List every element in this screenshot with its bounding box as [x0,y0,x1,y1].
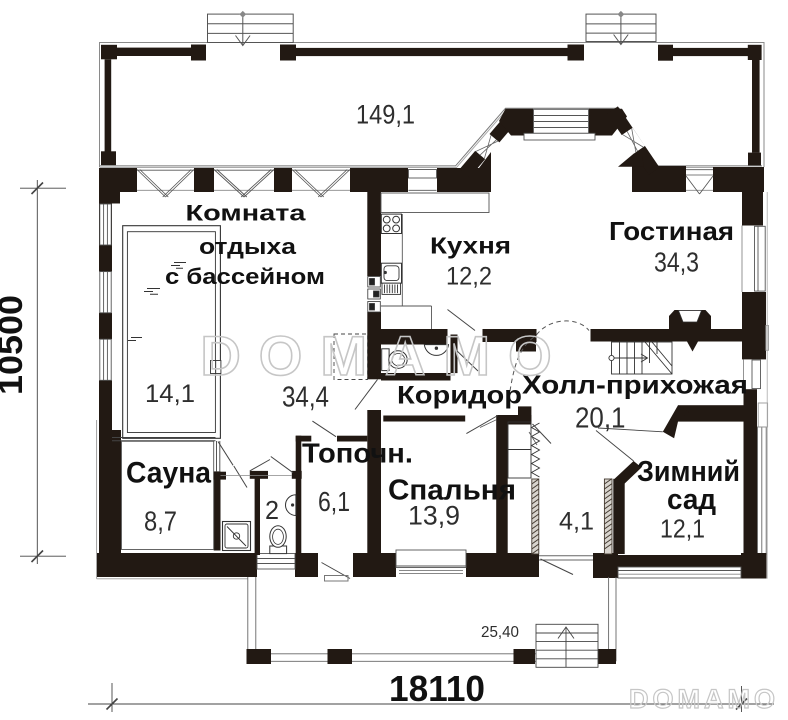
svg-text:12,1: 12,1 [660,514,705,544]
svg-text:25,40: 25,40 [481,624,519,641]
svg-text:DOMAMO: DOMAMO [629,684,779,714]
svg-text:149,1: 149,1 [356,100,415,130]
svg-text:6,1: 6,1 [318,486,350,517]
svg-text:8,7: 8,7 [144,506,177,537]
svg-text:4,1: 4,1 [559,508,594,536]
svg-text:34,3: 34,3 [654,247,699,278]
svg-text:Гостиная: Гостиная [609,216,734,246]
svg-text:DOMAMO: DOMAMO [200,324,569,387]
svg-text:18110: 18110 [389,668,485,709]
svg-text:14,1: 14,1 [145,380,195,408]
svg-text:Комната: Комната [186,201,307,226]
svg-text:13,9: 13,9 [408,501,460,531]
svg-text:Топочн.: Топочн. [302,438,413,469]
svg-text:отдыха: отдыха [199,234,297,259]
svg-text:2: 2 [265,497,279,525]
svg-text:сад: сад [667,484,716,516]
svg-text:Сауна: Сауна [126,457,211,490]
svg-text:с бассейном: с бассейном [165,264,325,289]
svg-text:Кухня: Кухня [430,233,511,259]
svg-text:12,2: 12,2 [446,263,492,291]
svg-text:10500: 10500 [0,295,30,395]
svg-text:20,1: 20,1 [575,403,626,435]
